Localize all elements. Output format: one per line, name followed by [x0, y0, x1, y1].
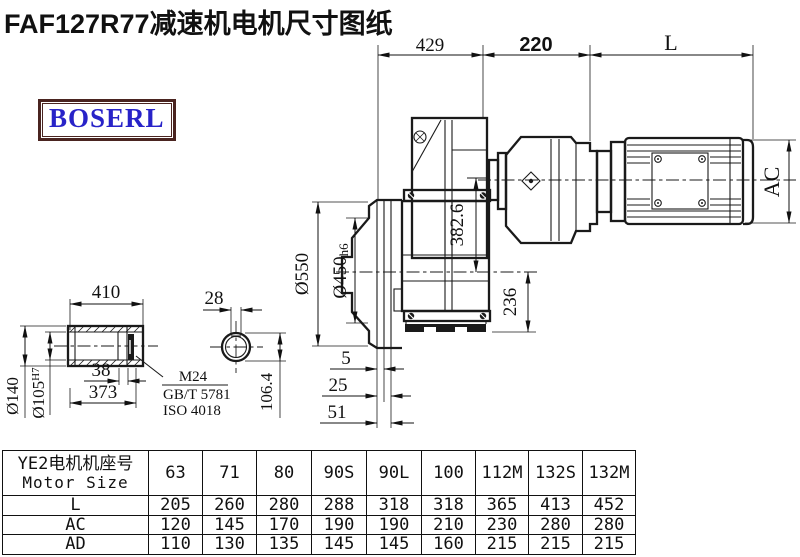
frame-size-col: 112M	[476, 451, 529, 496]
dim-L: L	[664, 30, 677, 55]
svg-text:382.6: 382.6	[447, 204, 468, 247]
callout-m24: M24	[179, 369, 208, 385]
row-label: AD	[3, 535, 149, 555]
svg-text:106.4: 106.4	[257, 372, 276, 411]
svg-text:236: 236	[500, 288, 521, 317]
svg-text:28: 28	[205, 288, 224, 309]
frame-size-col: 90L	[367, 451, 422, 496]
svg-text:410: 410	[92, 282, 121, 303]
row-label: AC	[3, 515, 149, 535]
motor-side-view	[597, 138, 753, 224]
r77-gear-unit	[489, 137, 597, 243]
frame-size-col: 71	[203, 451, 257, 496]
svg-text:373: 373	[89, 382, 118, 403]
hollow-shaft-detail: 410 38 373 Ø140 Ø105H7 M24 GB/T 5781 ISO…	[3, 282, 231, 419]
svg-text:Ø550: Ø550	[292, 253, 313, 295]
dimension-drawing: 429 220 L	[0, 0, 800, 455]
callout-iso: ISO 4018	[163, 403, 221, 419]
svg-text:Ø450h6: Ø450h6	[330, 243, 351, 299]
table-header-motor-size: YE2电机机座号 Motor Size	[3, 451, 149, 496]
frame-size-col: 63	[149, 451, 203, 496]
svg-text:5: 5	[341, 348, 351, 369]
svg-text:25: 25	[329, 375, 348, 396]
dim-220: 220	[519, 34, 552, 56]
frame-size-col: 132M	[583, 451, 636, 496]
svg-text:38: 38	[92, 360, 111, 381]
table-row-AD: AD 110 130 135 145 145 160 215 215 215	[3, 535, 636, 555]
svg-text:Ø105H7: Ø105H7	[29, 367, 48, 419]
frame-size-col: 132S	[529, 451, 583, 496]
frame-size-col: 80	[257, 451, 312, 496]
motor-size-table: YE2电机机座号 Motor Size 63 71 80 90S 90L 100…	[2, 450, 636, 555]
svg-text:Ø140: Ø140	[3, 377, 22, 415]
output-flange	[342, 200, 402, 348]
frame-size-col: 100	[422, 451, 476, 496]
svg-text:AC: AC	[759, 167, 784, 198]
top-dimension-chain: 429 220 L	[378, 30, 753, 199]
frame-size-col: 90S	[312, 451, 367, 496]
dim-spigot: Ø450h6	[330, 218, 368, 323]
table-row-AC: AC 120 145 170 190 190 210 230 280 280	[3, 515, 636, 535]
callout-gbt: GB/T 5781	[163, 387, 231, 403]
table-row-L: L 205 260 280 288 318 318 365 413 452	[3, 496, 636, 516]
row-label: L	[3, 496, 149, 516]
dim-flange-offsets: 5 25 51	[320, 348, 414, 428]
dim-236: 236	[492, 272, 536, 332]
svg-text:51: 51	[328, 402, 347, 423]
dim-429: 429	[416, 35, 445, 56]
